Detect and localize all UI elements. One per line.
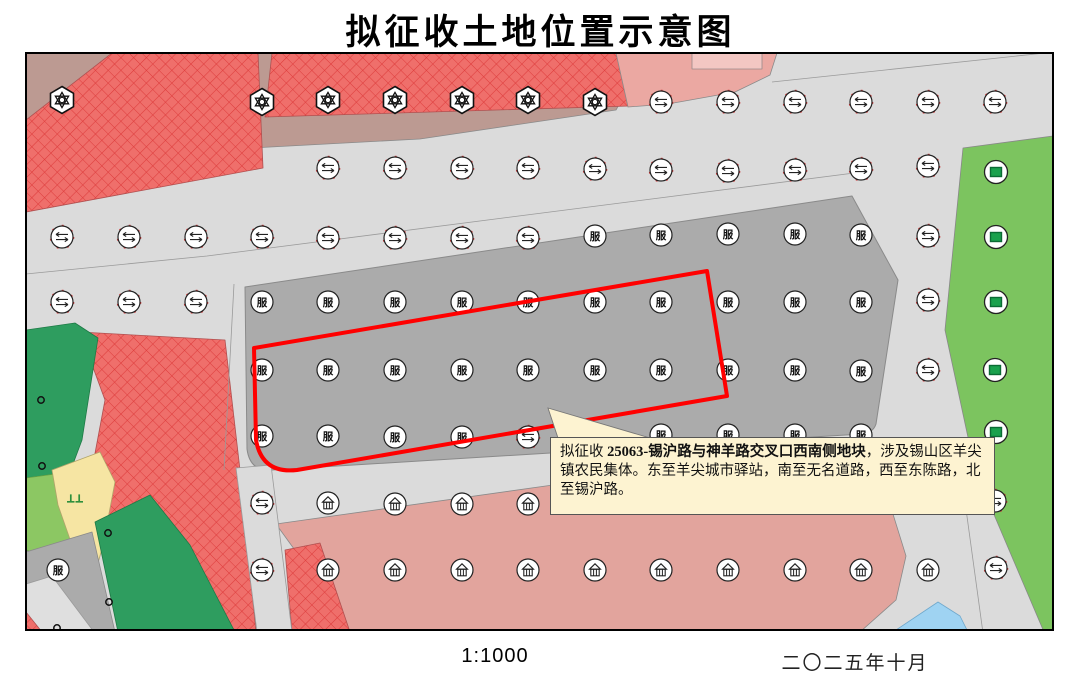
industrial-plant-symbol: [251, 89, 274, 116]
commercial-service-symbol: [717, 223, 739, 245]
parcel-pink-top-building: [692, 53, 762, 69]
green-space-symbol: [985, 226, 1008, 249]
commercial-service-symbol: [784, 359, 806, 381]
residential-warehouse-symbol: [451, 559, 473, 581]
map-date: 二〇二五年十月: [770, 648, 940, 675]
residential-warehouse-symbol: [584, 559, 606, 581]
industrial-plant-symbol: [317, 87, 340, 114]
commercial-service-symbol: [850, 224, 872, 246]
commercial-service-symbol: [451, 359, 473, 381]
commercial-service-symbol: [850, 360, 872, 382]
residential-warehouse-symbol: [850, 559, 872, 581]
commercial-service-symbol: [251, 291, 273, 313]
industrial-plant-symbol: [517, 87, 540, 114]
industrial-plant-symbol: [51, 87, 74, 114]
residential-warehouse-symbol: [384, 493, 406, 515]
commercial-service-symbol: [384, 291, 406, 313]
residential-warehouse-symbol: [317, 559, 339, 581]
residential-warehouse-symbol: [317, 492, 339, 514]
residential-warehouse-symbol: [384, 559, 406, 581]
residential-warehouse-symbol: [517, 559, 539, 581]
commercial-service-symbol: [317, 425, 339, 447]
commercial-service-symbol: [717, 291, 739, 313]
commercial-service-symbol: [317, 359, 339, 381]
residential-warehouse-symbol: [717, 559, 739, 581]
commercial-service-symbol: [584, 225, 606, 247]
land-map: 服: [0, 0, 1081, 685]
commercial-service-symbol: [47, 559, 69, 581]
green-space-symbol: [985, 291, 1008, 314]
residential-warehouse-symbol: [784, 559, 806, 581]
residential-warehouse-symbol: [917, 559, 939, 581]
residential-warehouse-symbol: [650, 559, 672, 581]
commercial-service-symbol: [384, 359, 406, 381]
industrial-plant-symbol: [384, 87, 407, 114]
map-scale: 1:1000: [430, 645, 560, 668]
commercial-service-symbol: [784, 223, 806, 245]
callout-plot-name: 25063-锡沪路与神羊路交叉口西南侧地块: [607, 444, 866, 460]
commercial-service-symbol: [317, 291, 339, 313]
industrial-plant-symbol: [584, 89, 607, 116]
green-space-symbol: [984, 359, 1007, 382]
residential-warehouse-symbol: [451, 493, 473, 515]
commercial-service-symbol: [850, 291, 872, 313]
commercial-service-symbol: [650, 359, 672, 381]
commercial-service-symbol: [584, 359, 606, 381]
commercial-service-symbol: [517, 359, 539, 381]
commercial-service-symbol: [384, 426, 406, 448]
acquisition-callout: 拟征收 25063-锡沪路与神羊路交叉口西南侧地块，涉及锡山区羊尖镇农民集体。东…: [550, 437, 995, 515]
residential-warehouse-symbol: [517, 493, 539, 515]
callout-prefix: 拟征收: [560, 444, 607, 460]
commercial-service-symbol: [650, 291, 672, 313]
commercial-service-symbol: [584, 291, 606, 313]
industrial-plant-symbol: [451, 87, 474, 114]
green-space-symbol: [985, 161, 1008, 184]
commercial-service-symbol: [784, 291, 806, 313]
commercial-service-symbol: [650, 224, 672, 246]
page: 拟征收土地位置示意图 服: [0, 0, 1081, 685]
